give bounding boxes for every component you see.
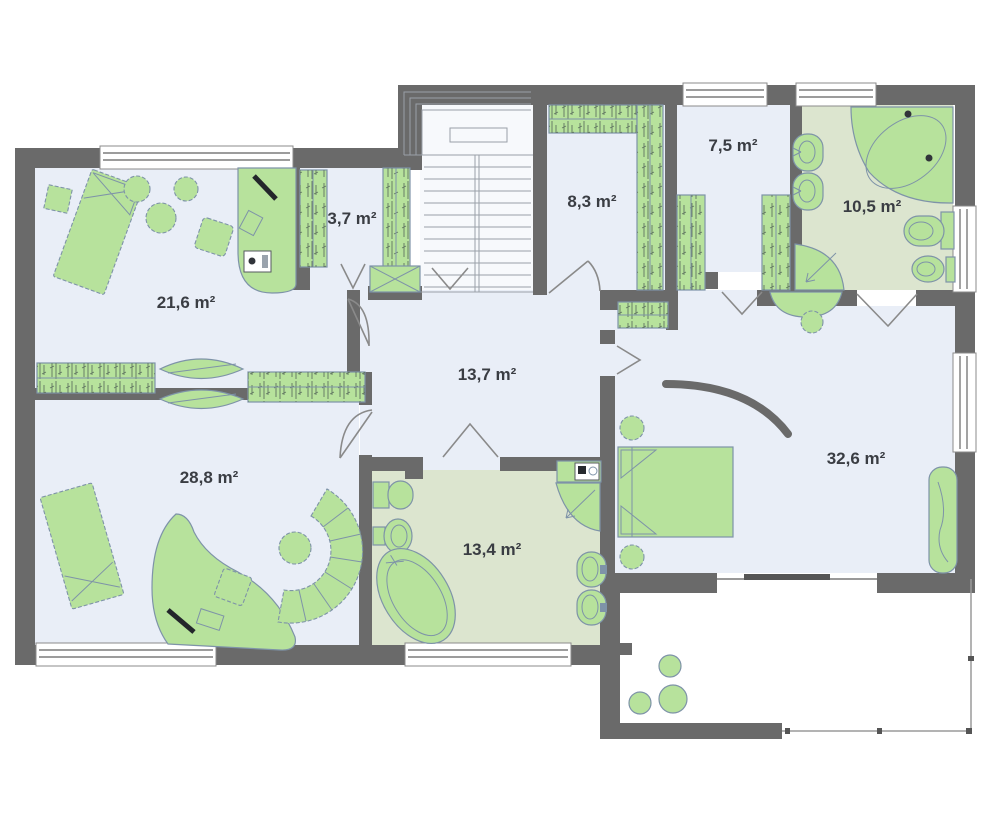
floor-plan: 21,6 m² 3,7 m² 8,3 m² 7,5 m² 10,5 m² 13,… [0, 0, 1000, 823]
room-label-28-8: 28,8 m² [180, 468, 239, 487]
wardrobe [37, 363, 155, 393]
window-top-right [796, 83, 876, 106]
wardrobe [248, 372, 365, 402]
bidet [912, 256, 955, 282]
wardrobe [637, 105, 663, 290]
window-right-bath [953, 206, 976, 292]
wardrobe [762, 195, 790, 290]
window-top-left [100, 146, 293, 169]
nightstand [44, 185, 72, 213]
wardrobe [677, 195, 705, 290]
terrace-post [968, 656, 974, 661]
wall [600, 290, 618, 310]
stool-round [279, 532, 311, 564]
stool-round [801, 311, 823, 333]
room-label-3-7: 3,7 m² [327, 209, 376, 228]
room-label-13-7: 13,7 m² [458, 365, 517, 384]
sink [577, 590, 607, 625]
room-label-10-5: 10,5 m² [843, 197, 902, 216]
window-top-mid [683, 83, 767, 106]
terrace-post [966, 728, 972, 734]
toilet [904, 212, 954, 249]
wall [955, 85, 975, 593]
washer [557, 461, 601, 482]
wall [600, 723, 782, 739]
wall [665, 85, 677, 290]
wall [916, 290, 958, 306]
terrace-plant [659, 655, 681, 677]
sliding-door [717, 574, 877, 580]
sink [577, 552, 607, 587]
wall [533, 85, 547, 295]
window-bottom-bath [405, 643, 571, 666]
chaise-longue [929, 467, 957, 573]
double-bed [618, 447, 733, 537]
terrace-plant [629, 692, 651, 714]
sink [793, 134, 823, 171]
wall [600, 330, 615, 344]
wardrobe [300, 170, 327, 267]
wall [405, 457, 423, 479]
round-chair [124, 176, 150, 202]
window-right-bedroom [953, 353, 976, 452]
window-bottom-left [36, 643, 216, 666]
nightstand-round [620, 545, 644, 569]
sink [793, 173, 823, 210]
room-label-13-4: 13,4 m² [463, 540, 522, 559]
terrace-table [659, 685, 687, 713]
room-label-8-3: 8,3 m² [567, 192, 616, 211]
room-label-32-6: 32,6 m² [827, 449, 886, 468]
nightstand-round [620, 416, 644, 440]
wall [877, 573, 975, 593]
shaft-box [370, 266, 420, 292]
floor-plan-canvas: 21,6 m² 3,7 m² 8,3 m² 7,5 m² 10,5 m² 13,… [0, 0, 1000, 823]
wall [600, 573, 717, 593]
floor-stairwell [420, 88, 533, 292]
round-chair [174, 177, 198, 201]
terrace-post [877, 728, 882, 734]
wardrobe [549, 105, 637, 133]
wardrobe [618, 302, 668, 328]
room-label-7-5: 7,5 m² [708, 136, 757, 155]
pc-unit [244, 251, 271, 272]
wall [618, 643, 632, 655]
toilet [373, 481, 413, 509]
wall [15, 148, 35, 665]
room-label-21-6: 21,6 m² [157, 293, 216, 312]
terrace-post [785, 728, 790, 734]
round-chair [146, 203, 176, 233]
